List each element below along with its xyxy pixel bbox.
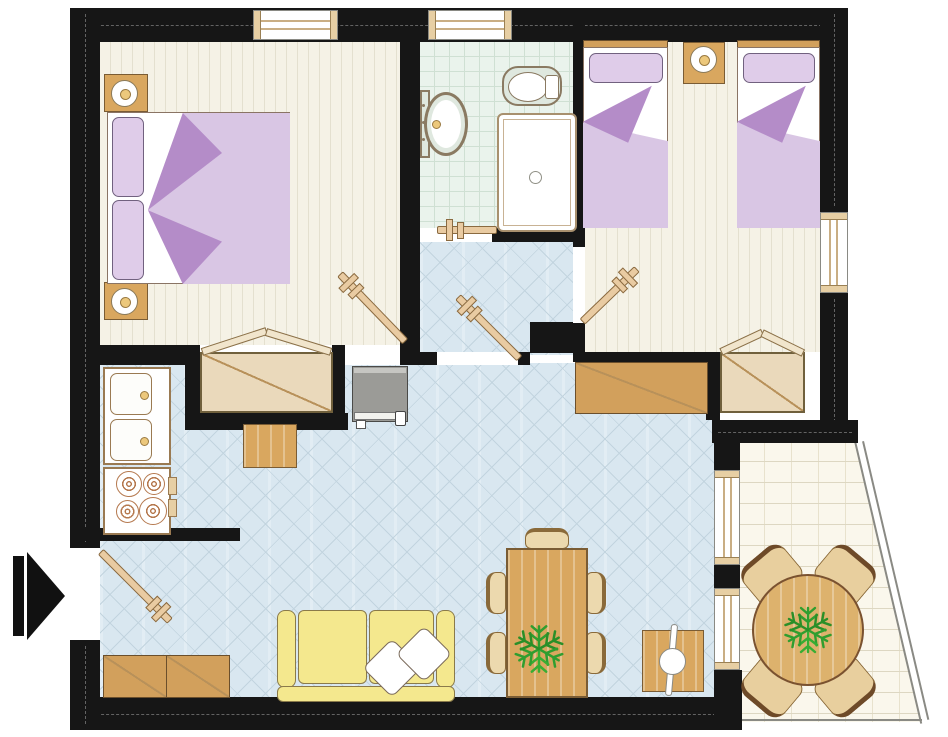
wall-bedroom1-bathroom [400, 42, 420, 365]
window [820, 212, 848, 293]
window [428, 10, 512, 40]
wall-hall-bottom-left [420, 352, 437, 365]
pillow [112, 117, 144, 197]
bedroom-2-door-opening [573, 247, 585, 323]
burner [116, 500, 139, 523]
burner [116, 471, 142, 497]
bedroom-1-door-opening [345, 345, 400, 365]
tap-dots [422, 121, 425, 124]
sofa-seat [277, 686, 455, 702]
wall-terrace-window-b [714, 565, 740, 588]
hall-living-door-opening [437, 352, 518, 365]
wall-right-upper [820, 8, 848, 212]
small-table [243, 424, 297, 468]
dining-chair [486, 572, 506, 614]
pillow [743, 53, 815, 83]
sofa-cushion [298, 610, 367, 684]
stove-knob [168, 499, 177, 517]
stove-knob [168, 477, 177, 495]
sofa-armrest [277, 610, 296, 688]
bathroom-door-leaf [437, 226, 497, 234]
wall-hall-corner [530, 322, 585, 353]
faucet [432, 120, 441, 129]
window [714, 470, 740, 565]
refrigerator-foot [356, 420, 366, 429]
sink-drain [140, 437, 149, 446]
wardrobe [720, 352, 805, 413]
dining-chair [486, 632, 506, 674]
wall-bedroom1-bottom [100, 345, 185, 365]
sink-drain [140, 391, 149, 400]
sideboard [575, 362, 708, 414]
wall-left-upper [70, 8, 100, 548]
wall-terrace-window-a [714, 443, 740, 470]
entrance-arrow-bar [13, 556, 24, 636]
lamp-bulb [120, 297, 131, 308]
tap-dots [422, 104, 425, 107]
dining-chair [586, 632, 606, 674]
side-table-lamp [659, 648, 686, 675]
window [714, 588, 740, 670]
wardrobe [200, 352, 333, 413]
shower-drain [529, 171, 542, 184]
pillow [112, 200, 144, 280]
wall-bedroom2-bottom [573, 352, 713, 362]
pillow [589, 53, 663, 83]
burner [143, 473, 165, 495]
plant [776, 598, 840, 662]
tap-dots [422, 138, 425, 141]
wall-terrace-window-c [714, 670, 742, 730]
plant [506, 616, 572, 682]
entry-cabinet [103, 655, 167, 698]
dining-chair [586, 572, 606, 614]
lamp-bulb [120, 89, 131, 100]
refrigerator-top [354, 368, 406, 373]
floor-plan [0, 0, 948, 737]
window [253, 10, 338, 40]
wall-sideboard-wardrobe [706, 352, 720, 420]
lamp-bulb [699, 55, 710, 66]
refrigerator-handle [395, 411, 406, 426]
toilet-bowl [508, 72, 548, 102]
wall-niche-right [332, 345, 345, 413]
terrace-railing-bottom [738, 719, 922, 721]
entrance-arrow [27, 552, 65, 640]
burner [139, 497, 167, 525]
wall-left-lower [70, 640, 100, 730]
dining-chair [525, 528, 569, 549]
toilet-tank [545, 75, 559, 99]
entry-cabinet [166, 655, 230, 698]
wall-terrace-top [712, 420, 858, 443]
